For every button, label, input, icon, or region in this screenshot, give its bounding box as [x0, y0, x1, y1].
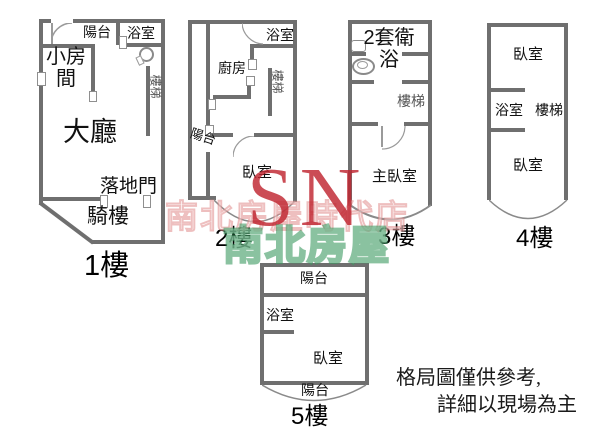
door-symbol — [119, 36, 127, 49]
wall — [260, 330, 294, 334]
door-swing-arc — [382, 126, 406, 150]
door-swing-arc — [242, 23, 264, 45]
room-label-stairs: 樓梯 — [535, 103, 563, 118]
room-label-bathroom: 浴室 — [127, 26, 155, 41]
room-label-balcony: 陽台 — [301, 383, 329, 398]
room-label-bathroom: 浴室 — [266, 308, 294, 323]
room-label-kitchen: 廚房 — [218, 61, 246, 76]
room-label-master-bedroom: 主臥室 — [372, 169, 417, 185]
floor-label-5: 5樓 — [291, 404, 328, 430]
wall — [348, 80, 374, 84]
wall — [206, 20, 210, 130]
room-label-stairs: 樓梯 — [149, 74, 162, 114]
wall — [487, 128, 525, 132]
wall — [91, 48, 95, 92]
watermark-brand-text: 南北房屋 — [223, 213, 391, 271]
disclaimer-line2: 詳細以現場為主 — [437, 388, 577, 417]
wall — [365, 263, 369, 385]
room-label-bedroom: 臥室 — [513, 47, 543, 63]
room-label-bath-suite: 2套衛浴 — [360, 28, 418, 71]
wall — [260, 293, 369, 297]
wall — [487, 23, 568, 27]
floor-plan-image: 陽台 浴室 小房間 樓梯 大廳 落地門 騎樓 1樓 浴室 — [0, 0, 600, 433]
room-label-hall: 大廳 — [63, 118, 117, 147]
floor-label-4: 4樓 — [516, 226, 553, 252]
room-label-balcony: 陽台 — [300, 271, 328, 286]
wall — [43, 197, 103, 201]
room-label-bathroom: 浴室 — [495, 103, 523, 118]
floor-label-1: 1樓 — [84, 251, 129, 282]
room-label-bedroom: 臥室 — [313, 351, 343, 367]
wall — [213, 95, 251, 99]
wall — [254, 133, 297, 137]
door-symbol — [246, 76, 255, 86]
wall — [260, 263, 264, 385]
wall — [402, 80, 432, 84]
wall — [404, 122, 432, 126]
disclaimer-line1: 格局圖僅供參考, — [396, 361, 541, 390]
room-label-bathroom: 浴室 — [266, 28, 294, 43]
wall — [348, 122, 378, 126]
room-label-bedroom: 臥室 — [513, 158, 543, 174]
room-label-stairs: 樓梯 — [397, 94, 425, 109]
wall — [348, 20, 432, 24]
wall — [92, 240, 165, 244]
label-french-door: 落地門 — [100, 177, 157, 198]
wall — [250, 48, 254, 59]
wall — [487, 88, 525, 92]
wall — [428, 20, 432, 206]
room-label-stairs: 樓梯 — [271, 69, 284, 109]
door-symbol — [208, 99, 216, 110]
room-label-small-room: 小房間 — [43, 47, 89, 90]
wall — [487, 23, 491, 200]
door-symbol — [248, 59, 257, 70]
wall — [188, 20, 192, 200]
room-label-balcony: 陽台 — [83, 25, 111, 40]
door-swing-arc — [51, 23, 74, 46]
wall — [564, 23, 568, 200]
bay-arc — [489, 199, 568, 222]
room-label-arcade: 騎樓 — [87, 206, 129, 229]
door-symbol — [89, 91, 97, 102]
